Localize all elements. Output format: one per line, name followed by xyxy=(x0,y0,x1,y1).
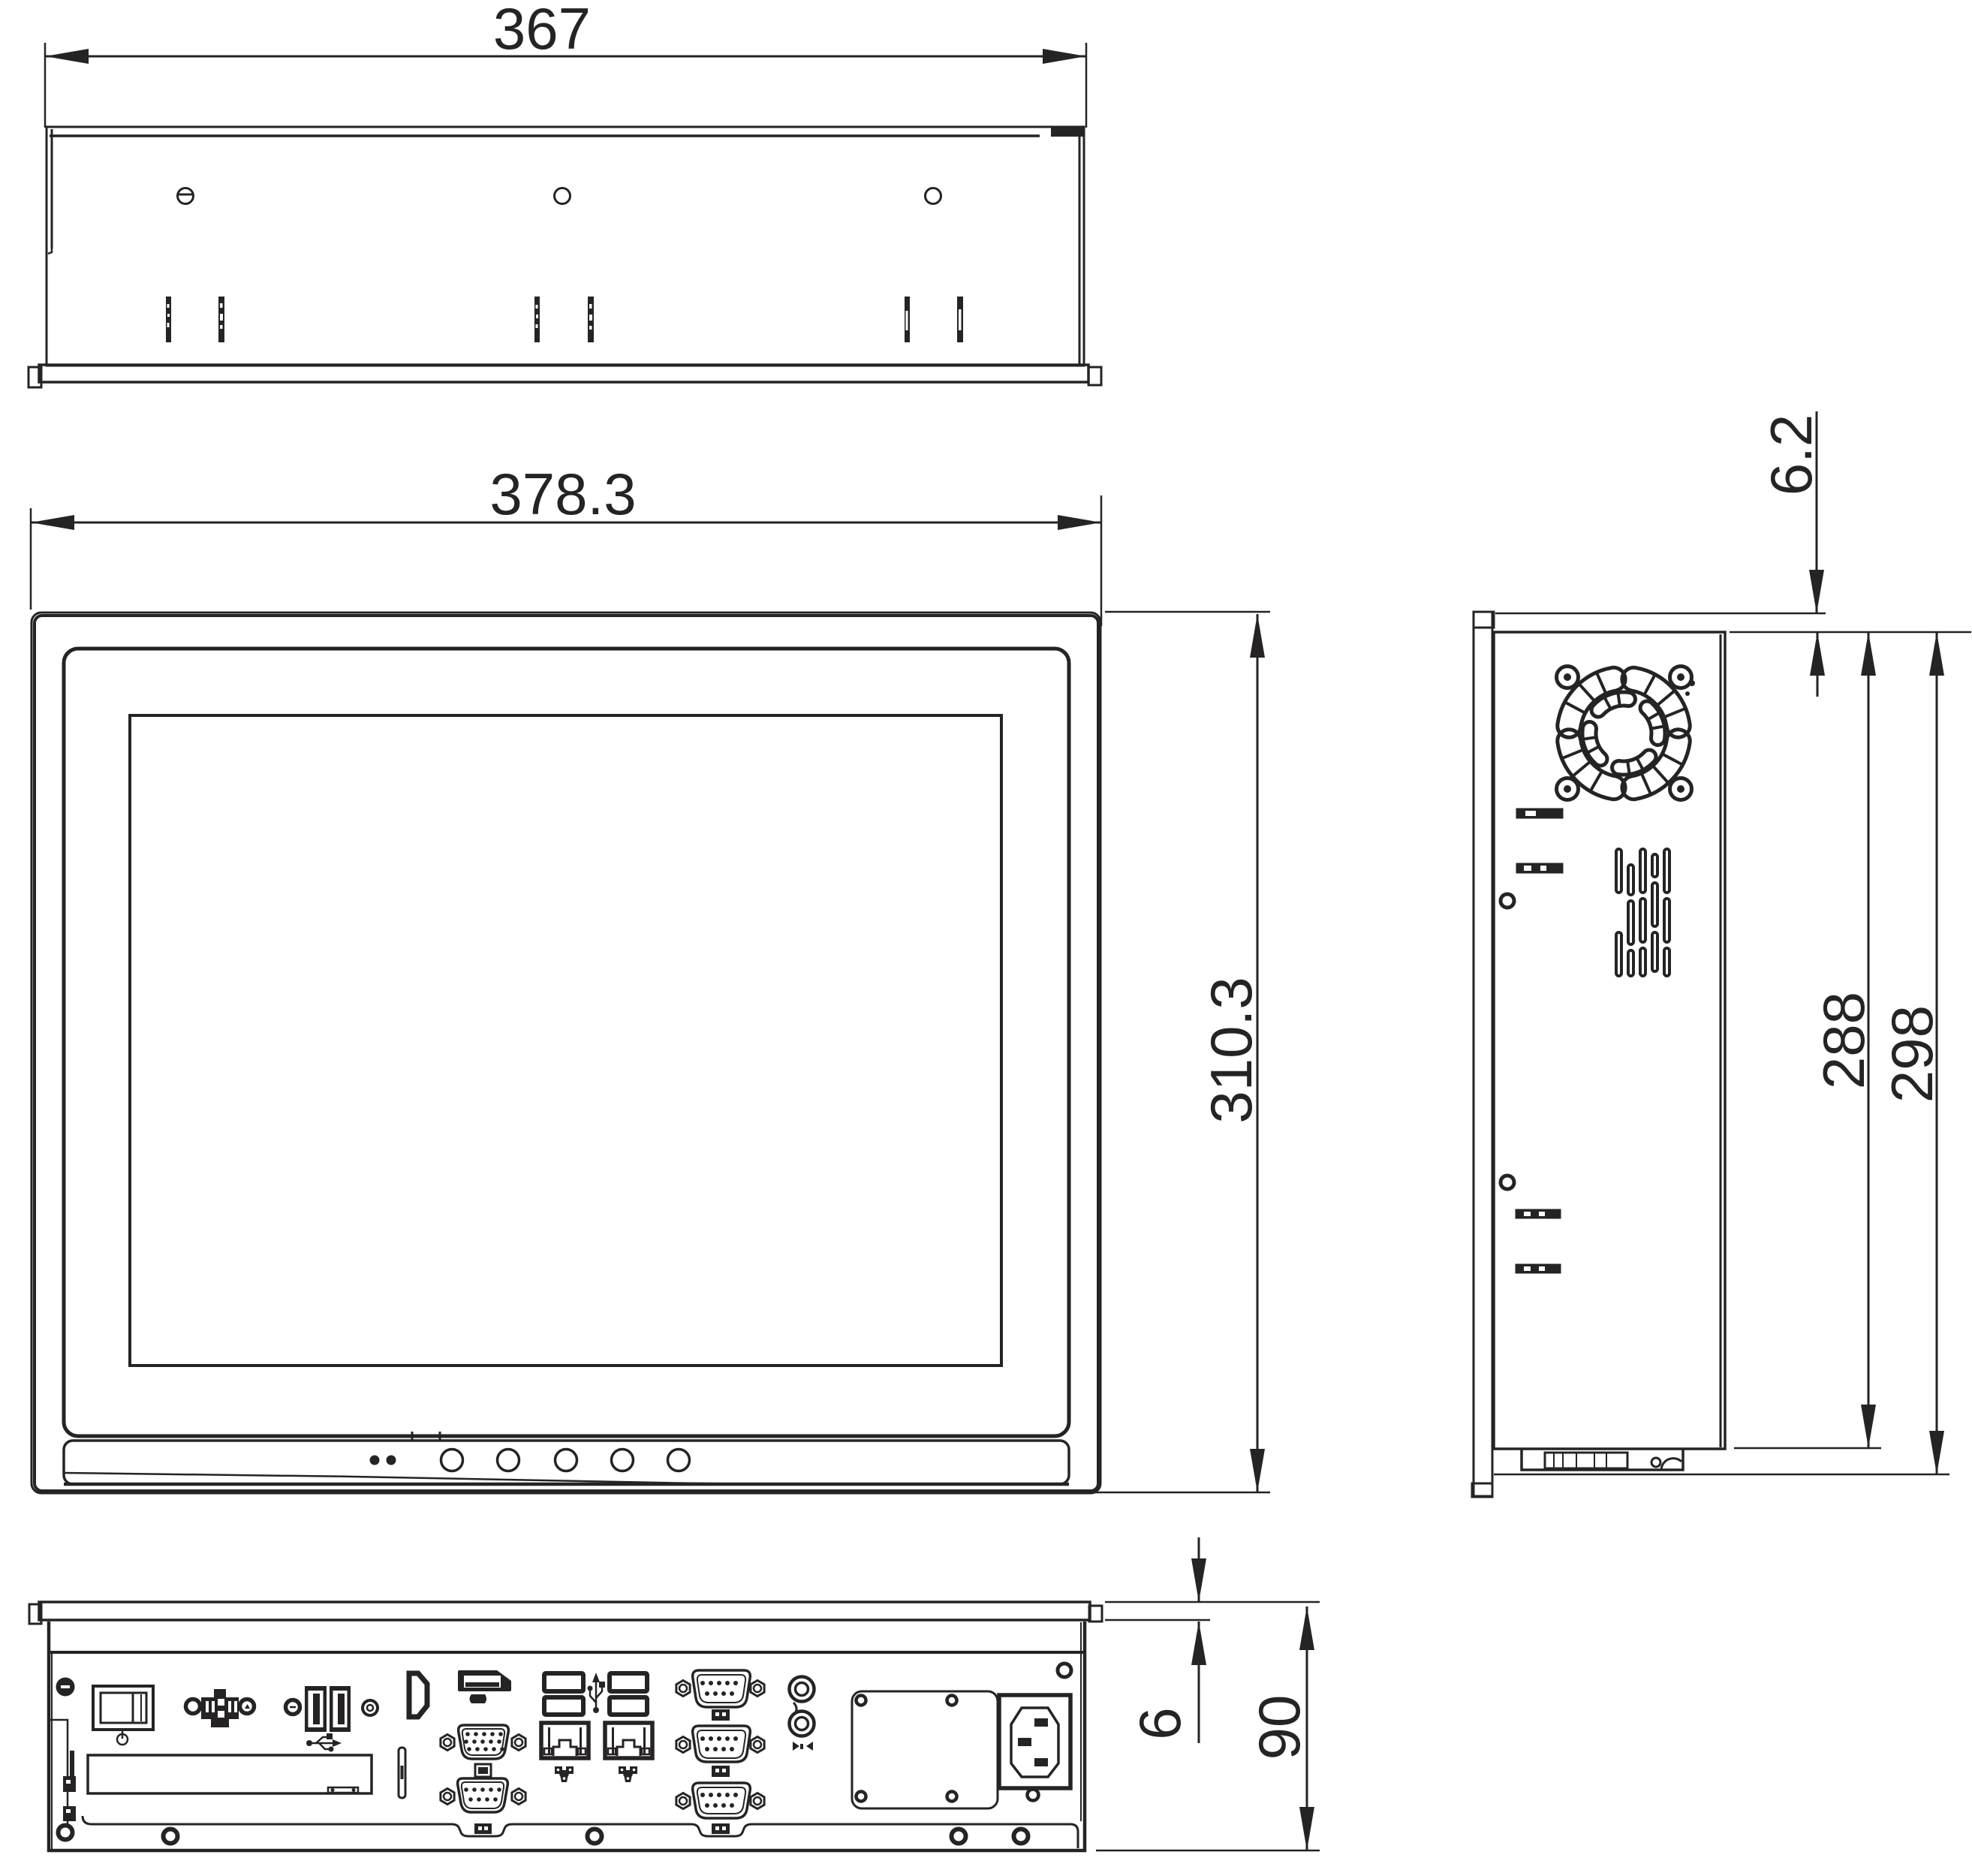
svg-text:90: 90 xyxy=(1246,1695,1312,1760)
svg-text:6.2: 6.2 xyxy=(1758,414,1824,495)
svg-text:298: 298 xyxy=(1879,1005,1945,1103)
svg-text:367: 367 xyxy=(493,0,591,62)
svg-text:6: 6 xyxy=(1127,1707,1193,1739)
svg-text:288: 288 xyxy=(1811,992,1877,1089)
svg-text:310.3: 310.3 xyxy=(1198,977,1264,1123)
svg-text:378.3: 378.3 xyxy=(489,461,636,527)
